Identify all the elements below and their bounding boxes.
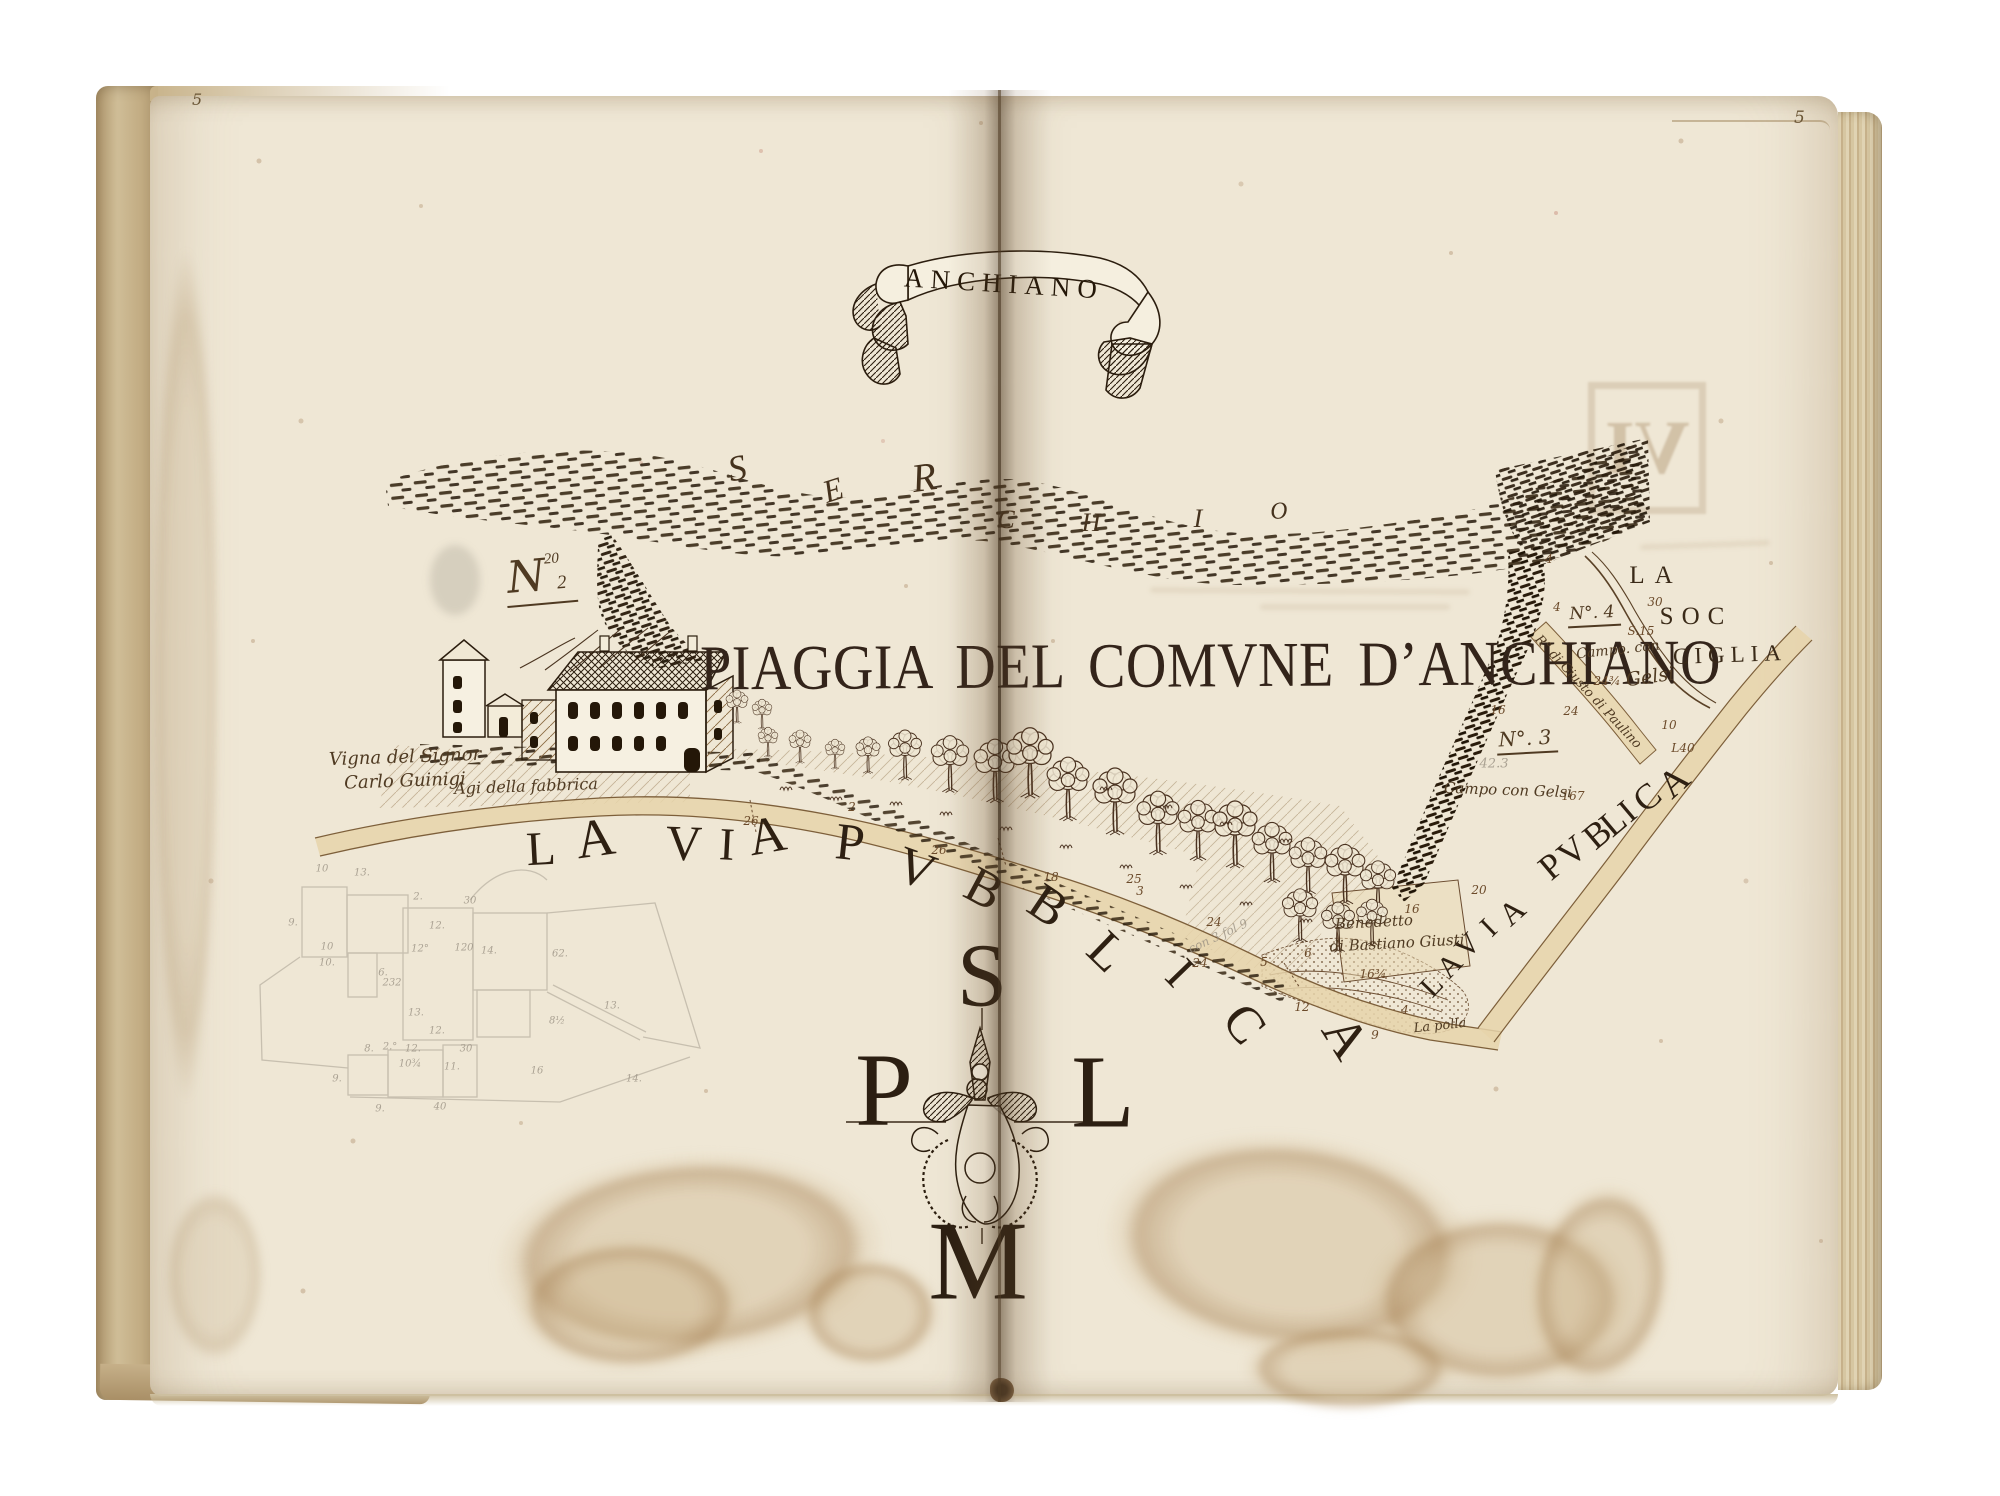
label-parcel-n4: N°. 4 (1567, 602, 1621, 629)
label-soc: SOC (1660, 603, 1733, 631)
label-vigna-line2: Carlo Guinigi (344, 768, 466, 793)
right-page (1000, 96, 1838, 1396)
label-parcel-n3: N°. 3 (1496, 724, 1558, 755)
n2-superscript: 20 (543, 550, 559, 567)
n2-letter: N (505, 550, 548, 604)
show-through-initial: VI (1588, 382, 1706, 514)
ink-smudge (430, 545, 480, 615)
label-la: LA (1629, 562, 1682, 590)
label-ciglia: CIGLIA (1673, 640, 1788, 670)
manuscript-photo: VI (0, 0, 2000, 1496)
folio-number-left: 5 (192, 90, 202, 109)
gutter-crease (998, 90, 1001, 1402)
compass-letter-m: M (928, 1198, 1028, 1327)
show-through-text (1260, 604, 1450, 610)
n2-number: 2 (556, 572, 567, 594)
initial-glyph: VI (1605, 405, 1689, 492)
page-stack-fore-edge (1838, 112, 1882, 1390)
map-main-title: PIAGGIA DEL COMVNE D’ANCHIANO (700, 628, 1500, 706)
foxing-specks (0, 0, 2, 2)
vellum-cover-left (96, 86, 158, 1400)
folio-number-right: 5 (1794, 108, 1805, 128)
compass-letter-l: L (1071, 1033, 1135, 1152)
compass-letter-p: P (855, 1031, 913, 1150)
gutter-bottom-spot (990, 1378, 1014, 1402)
left-page (150, 96, 1000, 1396)
parcel-label-n2: N202 (503, 547, 579, 608)
sheet-edge-step (1672, 120, 1830, 132)
